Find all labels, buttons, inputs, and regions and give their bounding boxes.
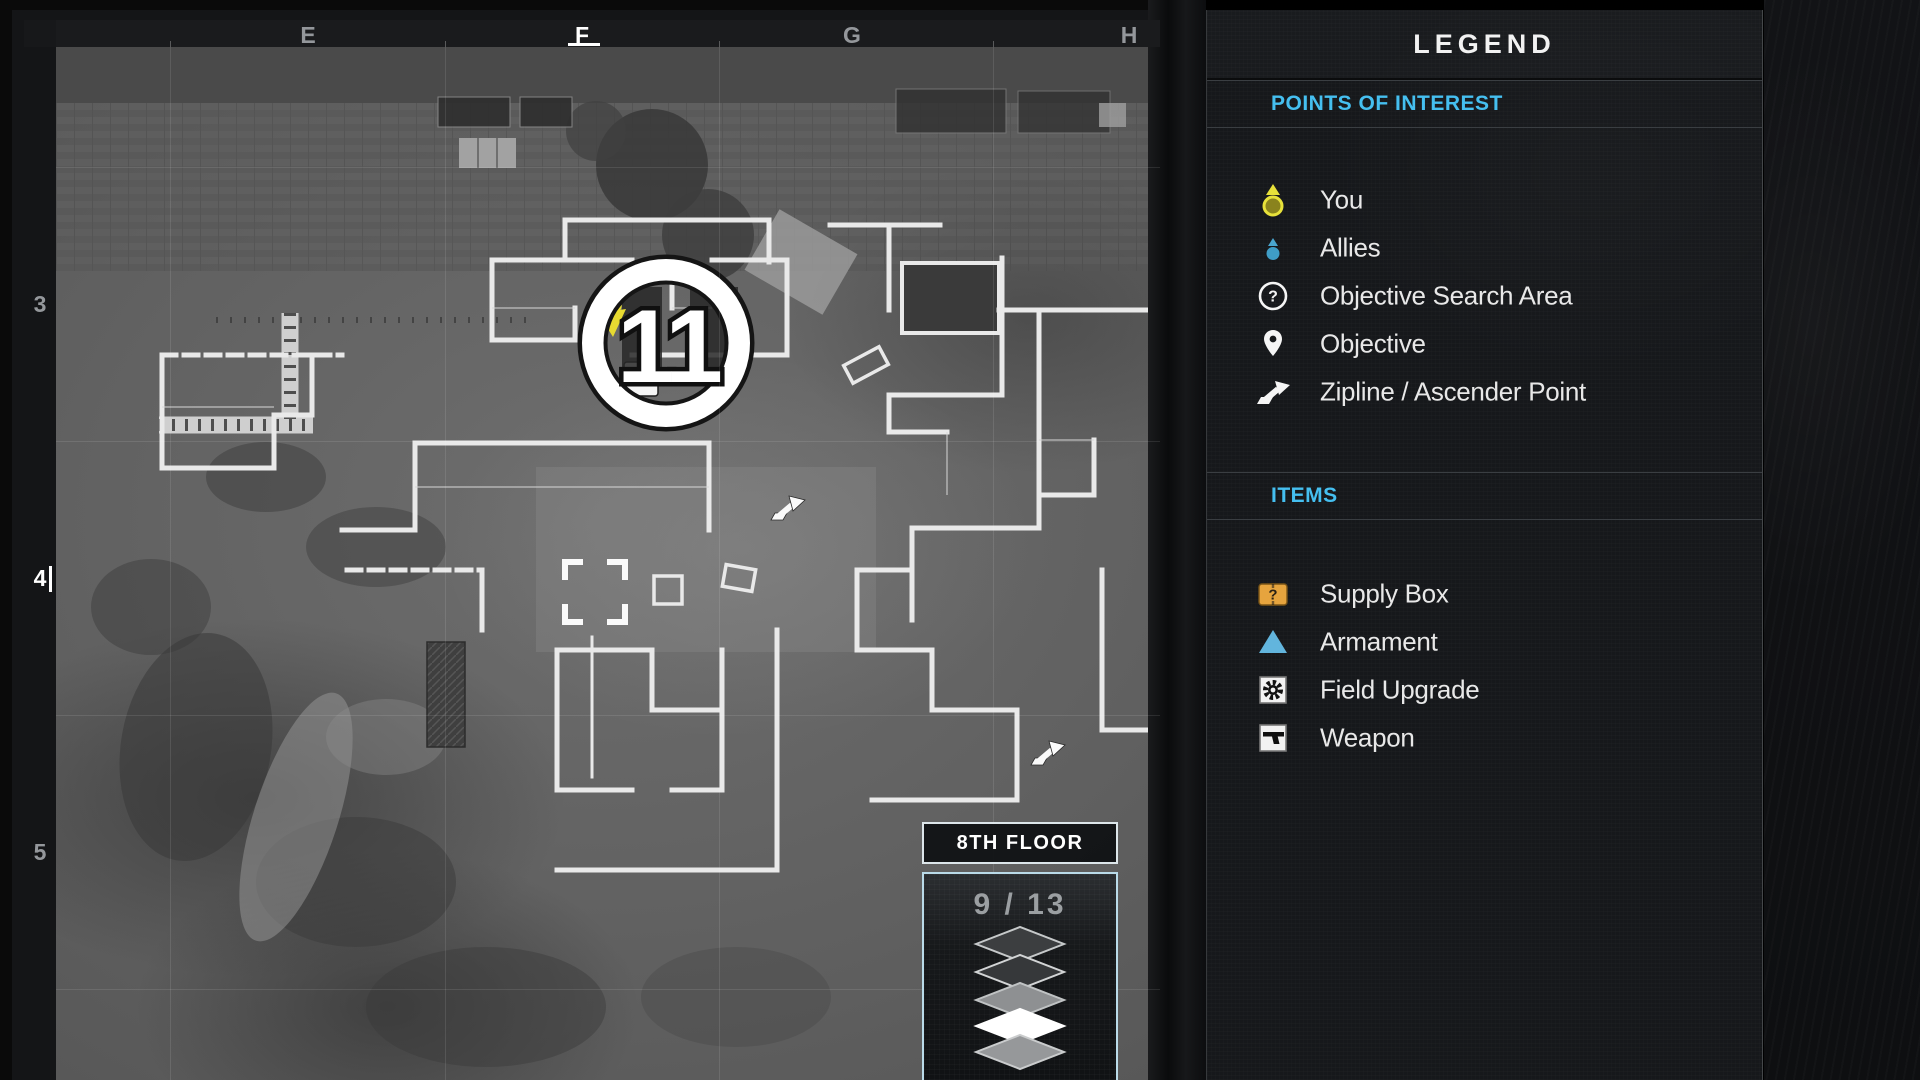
legend-label: Field Upgrade [1320,675,1479,706]
supply-box-icon: ? [1253,574,1293,614]
floor-layer [976,1035,1064,1069]
svg-text:?: ? [1268,289,1278,306]
game-map-screen: 11 E F G H 3 4 5 8TH FLOOR [0,0,1920,1080]
legend-row-field-upgrade: Field Upgrade [1207,666,1762,714]
grid-line [719,47,720,1080]
poi-heading-text: POINTS OF INTEREST [1271,92,1503,116]
objective-circle-marker: 11 [580,257,752,429]
legend-title: LEGEND [1413,29,1556,60]
panel-gap [1148,0,1206,1080]
floor-selector[interactable]: 9 / 13 [922,872,1118,1080]
legend-label: Objective Search Area [1320,281,1572,312]
grid-tick [719,41,720,47]
map-outer-border-left [0,0,12,1080]
background-texture [1764,0,1920,1080]
floor-count: 9 / 13 [924,888,1116,922]
objective-pin-icon [1253,324,1293,364]
objective-search-icon: ? [1253,276,1293,316]
active-row-tick [49,566,52,592]
grid-corner [24,20,56,47]
legend-row-allies: Allies [1207,224,1762,272]
legend-row-objective: Objective [1207,320,1762,368]
legend-label: Objective [1320,329,1426,360]
items-section-heading: ITEMS [1207,472,1762,520]
armament-icon [1253,622,1293,662]
grid-line [170,47,171,1080]
gabled-roof-building [427,642,465,747]
floor-stack-diagram [924,922,1116,1072]
legend-row-you: You [1207,176,1762,224]
grid-row-header-band [24,20,56,1080]
field-upgrade-icon [1253,670,1293,710]
legend-label: Allies [1320,233,1380,264]
you-icon [1253,180,1293,220]
legend-row-armament: Armament [1207,618,1762,666]
grid-column-header-band [56,20,1160,47]
grid-tick [445,41,446,47]
grid-row-label-5: 5 [24,839,56,866]
grid-line [445,47,446,1080]
grid-tick [993,41,994,47]
poi-section-heading: POINTS OF INTEREST [1207,80,1762,128]
grid-column-label-h: H [1109,22,1149,49]
grid-line [56,167,1160,168]
weapon-icon [1253,718,1293,758]
legend-label: Supply Box [1320,579,1449,610]
legend-label: Zipline / Ascender Point [1320,377,1586,408]
grid-line [56,715,1160,716]
dark-room [902,263,999,333]
floor-label-text: 8TH FLOOR [957,832,1084,855]
floor-label: 8TH FLOOR [922,822,1118,864]
grid-line [56,441,1160,442]
map-outer-border-top [0,0,1148,10]
active-column-underline [568,43,600,46]
legend-label: You [1320,185,1363,216]
legend-row-weapon: Weapon [1207,714,1762,762]
legend-label: Weapon [1320,723,1415,754]
legend-row-objective-search: ? Objective Search Area [1207,272,1762,320]
zipline-map-icon [1031,741,1065,765]
legend-row-zipline: Zipline / Ascender Point [1207,368,1762,416]
svg-text:?: ? [1268,587,1277,604]
legend-header: LEGEND [1207,10,1762,80]
legend-label: Armament [1320,627,1438,658]
zipline-icon [1253,372,1293,412]
legend-row-supply-box: ? Supply Box [1207,570,1762,618]
legend-panel: LEGEND POINTS OF INTEREST You Allies ? [1206,10,1763,1080]
grid-row-label-3: 3 [24,291,56,318]
items-heading-text: ITEMS [1271,484,1338,508]
grid-tick [170,41,171,47]
allies-icon [1253,228,1293,268]
grid-column-label-e: E [288,22,328,49]
marker-number: 11 [617,289,720,405]
grid-column-label-g: G [832,22,872,49]
